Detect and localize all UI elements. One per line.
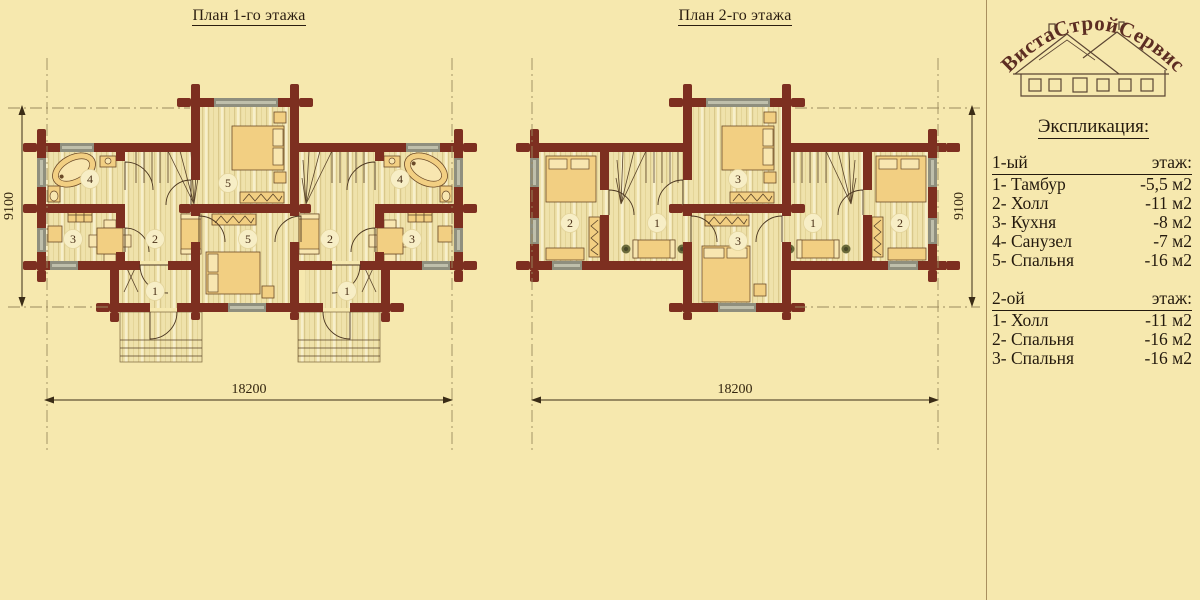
room-label: 3: [729, 232, 748, 251]
floor-plan-2: 2 1 3 3 1 2 9100 18200: [516, 58, 980, 452]
room-label: 1: [146, 282, 165, 301]
svg-text:1: 1: [810, 216, 816, 230]
svg-text:1: 1: [344, 284, 350, 298]
legend-floor1: 1-ый этаж: 1- Тамбур-5,5 м2 2- Холл-11 м…: [992, 152, 1192, 270]
floor-suffix: этаж:: [1152, 288, 1192, 309]
floor-plan-1: 4 2 3 5 1 5 2 4 3 1 9100 18200: [2, 58, 477, 452]
legend-row: 4- Санузел-7 м2: [992, 232, 1192, 251]
room-label: 1: [338, 282, 357, 301]
plan1-title: План 1-го этажа: [149, 7, 349, 25]
legend-floor2-header: 2-ой этаж:: [992, 288, 1192, 311]
legend-row: 5- Спальня-16 м2: [992, 251, 1192, 270]
floor-label: 1-ый: [992, 152, 1028, 173]
plan2-title: План 2-го этажа: [635, 7, 835, 25]
svg-text:2: 2: [567, 216, 573, 230]
svg-text:5: 5: [225, 176, 231, 190]
svg-text:2: 2: [897, 216, 903, 230]
room-label: 3: [403, 230, 422, 249]
svg-text:3: 3: [735, 234, 741, 248]
legend-row: 1- Тамбур-5,5 м2: [992, 175, 1192, 194]
svg-text:3: 3: [735, 172, 741, 186]
legend-row: 2- Спальня-16 м2: [992, 330, 1192, 349]
svg-text:2: 2: [152, 232, 158, 246]
legend-row: 1- Холл-11 м2: [992, 311, 1192, 330]
svg-text:1: 1: [654, 216, 660, 230]
drawing-sheet: 4 2 3 5 1 5 2 4 3 1 9100 18200: [0, 0, 1200, 600]
svg-text:3: 3: [409, 232, 415, 246]
room-label: 5: [219, 174, 238, 193]
svg-text:1: 1: [152, 284, 158, 298]
legend-row: 3- Спальня-16 м2: [992, 349, 1192, 368]
company-logo: ВистаСтройСервис: [987, 0, 1200, 112]
plan1-width-dim: 18200: [232, 382, 267, 397]
legend-floor1-header: 1-ый этаж:: [992, 152, 1192, 175]
room-label: 4: [81, 170, 100, 189]
room-label: 2: [321, 230, 340, 249]
room-label: 1: [648, 214, 667, 233]
svg-text:5: 5: [245, 232, 251, 246]
legend-row: 2- Холл-11 м2: [992, 194, 1192, 213]
room-label: 5: [239, 230, 258, 249]
legend-row: 3- Кухня-8 м2: [992, 213, 1192, 232]
room-label: 1: [804, 214, 823, 233]
floor-suffix: этаж:: [1152, 152, 1192, 173]
plan2-height-dim: 9100: [952, 192, 967, 220]
room-label: 3: [729, 170, 748, 189]
svg-text:4: 4: [397, 172, 403, 186]
plan1-height-dim: 9100: [2, 192, 17, 220]
legend-floor2: 2-ой этаж: 1- Холл-11 м2 2- Спальня-16 м…: [992, 288, 1192, 368]
room-label: 2: [891, 214, 910, 233]
svg-text:2: 2: [327, 232, 333, 246]
floor-label: 2-ой: [992, 288, 1025, 309]
svg-text:3: 3: [70, 232, 76, 246]
legend-heading: Экспликация:: [987, 116, 1200, 138]
right-panel: ВистаСтройСервис Экспликация: 1-ый этаж:…: [987, 0, 1200, 600]
plan2-width-dim: 18200: [718, 382, 753, 397]
room-label: 2: [146, 230, 165, 249]
room-label: 2: [561, 214, 580, 233]
svg-text:4: 4: [87, 172, 93, 186]
room-label: 3: [64, 230, 83, 249]
room-label: 4: [391, 170, 410, 189]
